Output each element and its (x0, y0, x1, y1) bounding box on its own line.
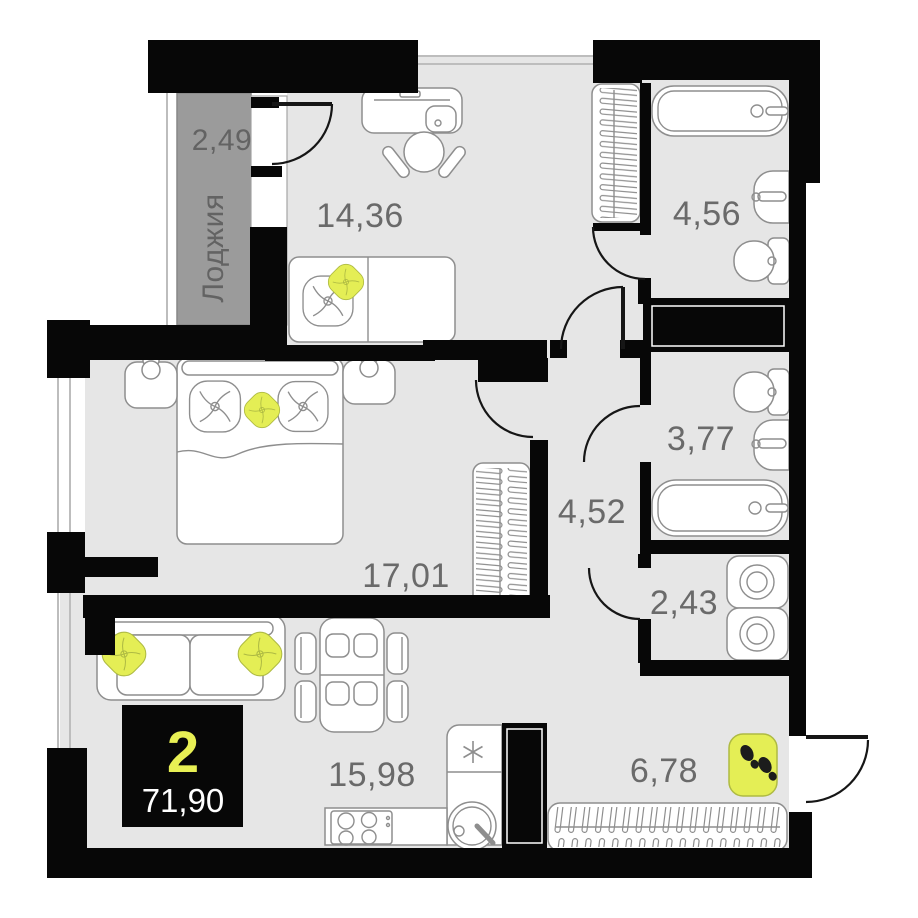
kitchen-area-label: 15,98 (328, 756, 416, 794)
washer-icon (727, 556, 788, 608)
loggia-name-label: Лоджия (197, 193, 230, 302)
wall-room-bedroom (265, 345, 435, 361)
badge-total-area: 71,90 (142, 782, 225, 819)
wall-wc-laundry (640, 540, 789, 554)
desk-icon (362, 88, 462, 133)
pillow-icon (190, 381, 241, 432)
loggia-area-label: 2,49 (192, 124, 252, 157)
nightstand-icon (125, 356, 177, 408)
toilet-icon (734, 238, 789, 284)
nightstand-icon (343, 354, 395, 404)
room-area-label: 14,36 (316, 197, 404, 235)
floor-plan: 2,49 Лоджия 14,36 4,56 3,77 4,52 17,01 2… (0, 0, 918, 918)
wall-left (47, 748, 87, 848)
closet-icon (592, 84, 640, 222)
pillow-icon (278, 382, 328, 432)
washbasin-icon (752, 171, 789, 223)
entry-wardrobe-icon (548, 803, 787, 851)
door-arc-entrance (806, 740, 868, 802)
entry-mat-icon (729, 734, 779, 796)
wall-under-loggia (47, 325, 287, 360)
floor-plan-page: 2,49 Лоджия 14,36 4,56 3,77 4,52 17,01 2… (0, 0, 918, 918)
bedroom-area-label: 17,01 (362, 557, 450, 595)
apartment-badge: 2 71,90 (122, 705, 243, 827)
wall-bedroom-living (83, 595, 550, 618)
wall-loggia-pier (250, 227, 287, 327)
bathtub-icon (652, 480, 788, 536)
sink-icon (448, 802, 496, 850)
sofa-icon (97, 615, 288, 700)
entry-area-label: 6,78 (630, 752, 698, 790)
laundry-area-label: 2,43 (650, 584, 718, 622)
bathtub-icon (652, 86, 788, 136)
door-leaf-bathroom (593, 223, 645, 231)
wall-top-left (148, 40, 418, 93)
dryer-icon (727, 608, 788, 660)
wardrobe-icon (473, 463, 530, 608)
stove-icon (331, 811, 392, 845)
double-bed-icon (177, 358, 343, 544)
toilet-icon (734, 369, 789, 415)
washbasin-icon (752, 420, 789, 470)
bathroom-area-label: 4,56 (673, 195, 741, 233)
wall-laundry-entry (640, 660, 789, 676)
wall-bottom (47, 848, 812, 878)
kitchen-shaft (502, 723, 547, 848)
hallway-area-label: 4,52 (558, 493, 626, 531)
wall-bedroom-hallway (530, 440, 548, 618)
single-bed-icon (289, 257, 455, 342)
wall-bathroom-left (640, 83, 651, 235)
wc-area-label: 3,77 (667, 420, 735, 458)
badge-rooms-count: 2 (167, 720, 199, 785)
wall-right (789, 40, 820, 183)
